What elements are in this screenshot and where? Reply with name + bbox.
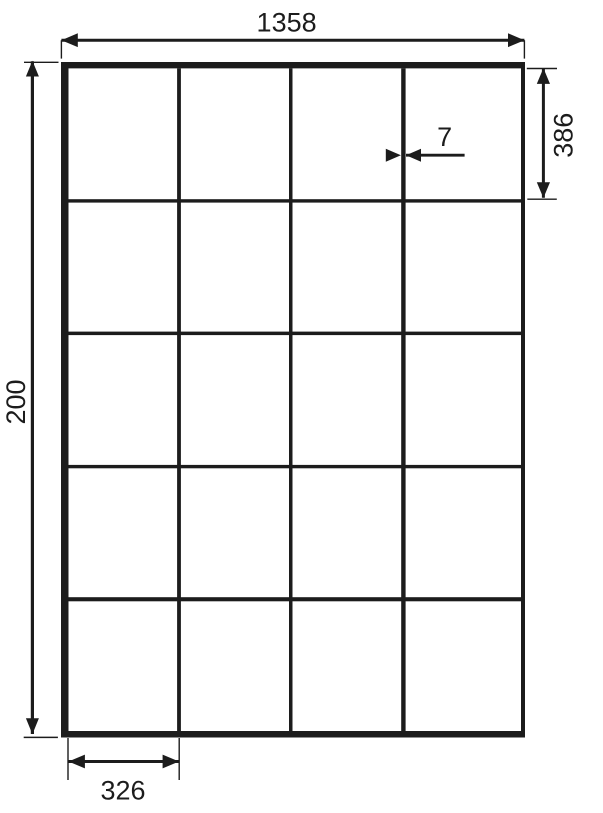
svg-text:7: 7 [437, 122, 452, 152]
svg-text:326: 326 [100, 776, 145, 806]
svg-text:1358: 1358 [257, 8, 317, 38]
svg-text:200: 200 [1, 379, 31, 424]
svg-text:386: 386 [548, 113, 578, 158]
